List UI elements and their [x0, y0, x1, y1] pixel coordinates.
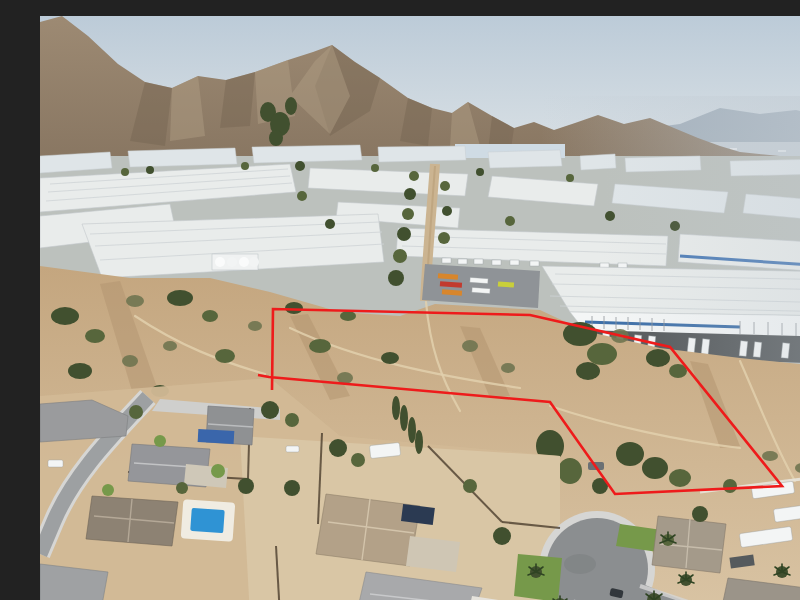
house-garage [406, 536, 460, 572]
swimming-pool [181, 499, 236, 542]
photo-canvas [40, 16, 800, 600]
aerial-photo [40, 16, 800, 600]
pavement-patch [564, 554, 596, 574]
tank-farm [212, 254, 259, 270]
covered-pool [198, 429, 235, 444]
